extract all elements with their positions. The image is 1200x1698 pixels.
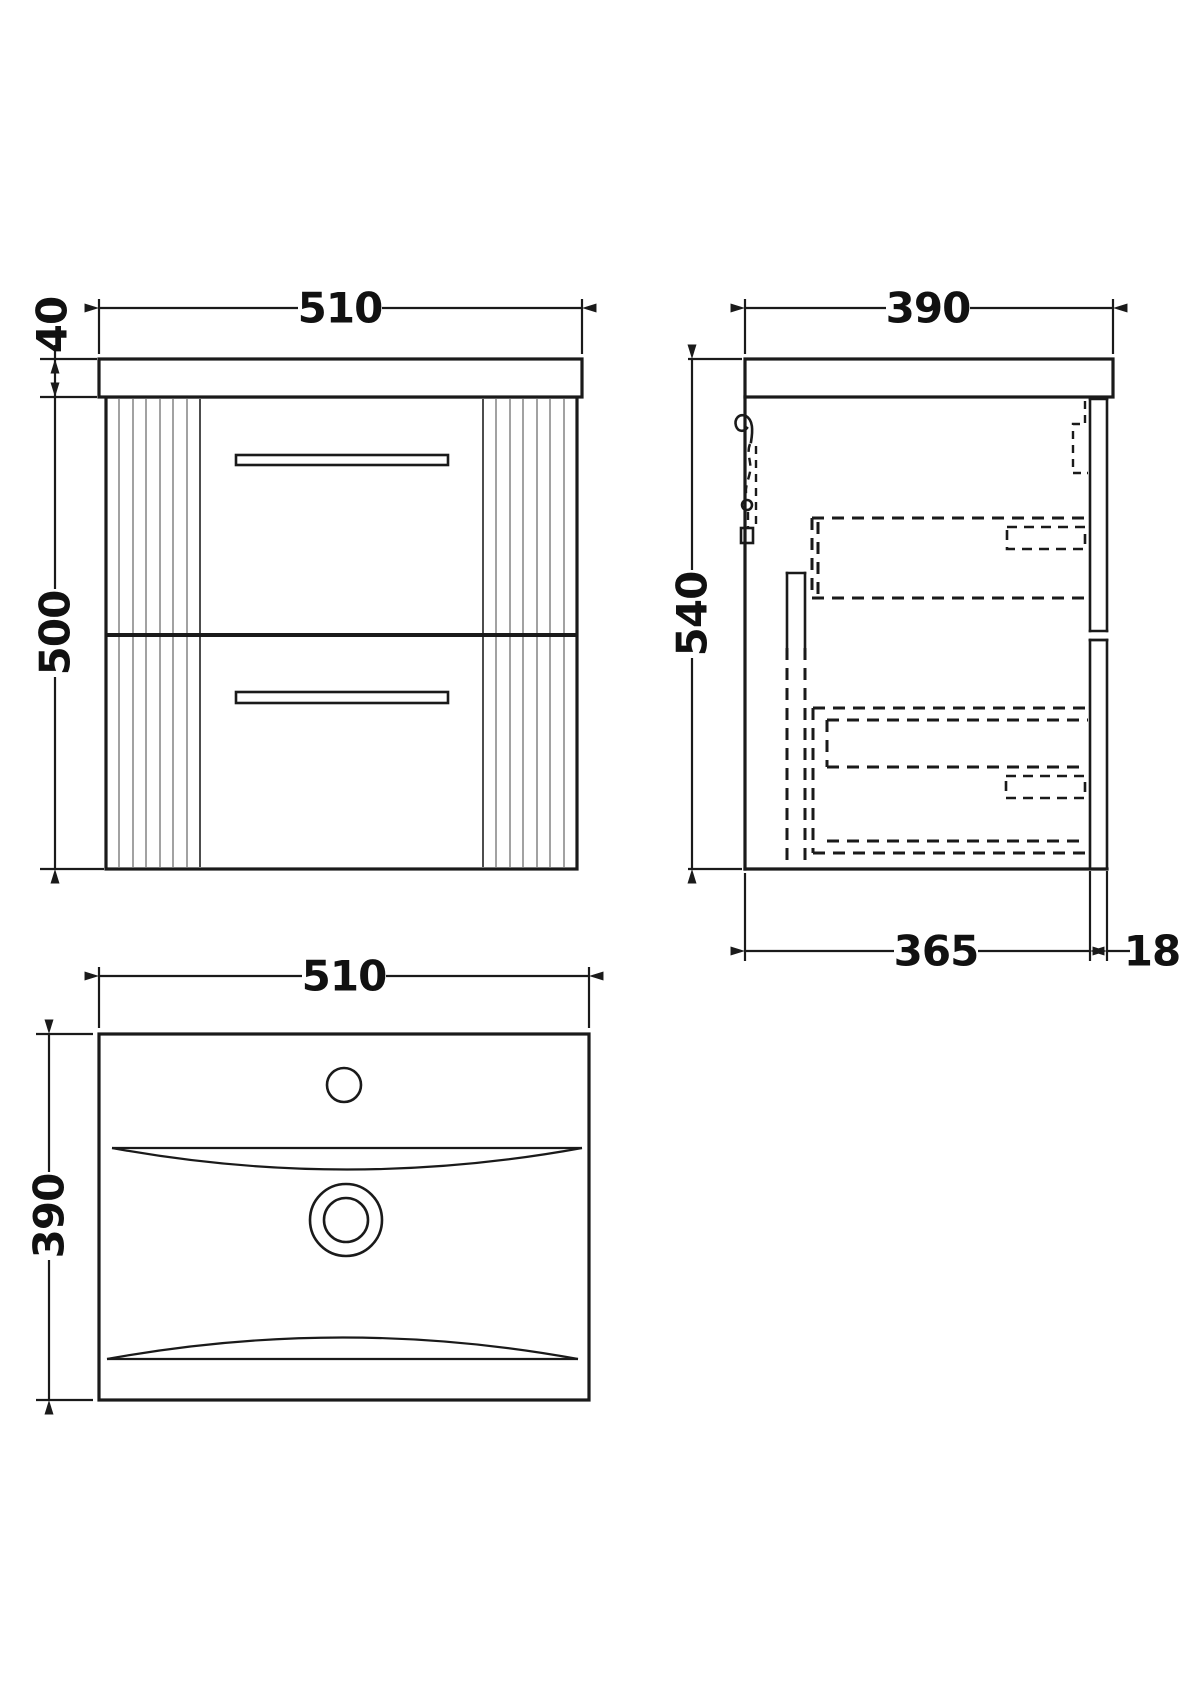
front-worktop-height-dimension: 40 — [28, 297, 98, 397]
hidden-drawer-front-step — [1073, 401, 1088, 473]
side-depth-dimension-label: 390 — [886, 284, 971, 333]
plan-depth-dimension-label: 390 — [25, 1174, 74, 1259]
plan-depth-dimension: 390 — [25, 1034, 94, 1400]
side-front-thickness-dimension-label: 18 — [1124, 927, 1180, 976]
side-carcass-depth-dimension: 365 18 — [745, 871, 1180, 976]
side-carcass-depth-dimension-label: 365 — [894, 927, 979, 976]
side-elevation-view: 390 540 365 18 — [668, 284, 1181, 976]
front-cabinet-height-dimension: 500 — [31, 397, 105, 869]
front-width-dimension: 510 — [99, 284, 582, 355]
side-height-dimension: 540 — [668, 359, 743, 869]
upper-drawer-hidden-outline — [812, 518, 1088, 598]
front-worktop-height-dimension-label: 40 — [28, 297, 77, 353]
side-depth-dimension: 390 — [745, 284, 1113, 355]
plan-width-dimension-label: 510 — [302, 952, 387, 1001]
plan-width-dimension: 510 — [99, 952, 589, 1029]
lower-drawer-handle — [236, 692, 448, 703]
basin-plan-view: 510 390 — [25, 952, 590, 1401]
front-countertop — [99, 359, 582, 397]
front-width-dimension-label: 510 — [298, 284, 383, 333]
lower-drawer-hidden-outline — [813, 708, 1088, 853]
upper-drawer-runner — [1007, 527, 1085, 549]
lower-drawer-runner — [1006, 776, 1085, 798]
front-cabinet-height-dimension-label: 500 — [31, 591, 80, 676]
vanity-technical-drawing: 510 40 500 — [0, 0, 1200, 1698]
side-drawer-fronts — [1090, 399, 1107, 867]
waste-pipe-hidden — [787, 573, 805, 866]
front-elevation-view: 510 40 500 — [28, 284, 583, 870]
side-countertop — [745, 359, 1113, 397]
basin-outline — [99, 1034, 589, 1400]
upper-drawer-handle — [236, 455, 448, 465]
vanity-technical-drawing-page: 510 40 500 — [0, 0, 1200, 1698]
side-height-dimension-label: 540 — [668, 572, 717, 657]
